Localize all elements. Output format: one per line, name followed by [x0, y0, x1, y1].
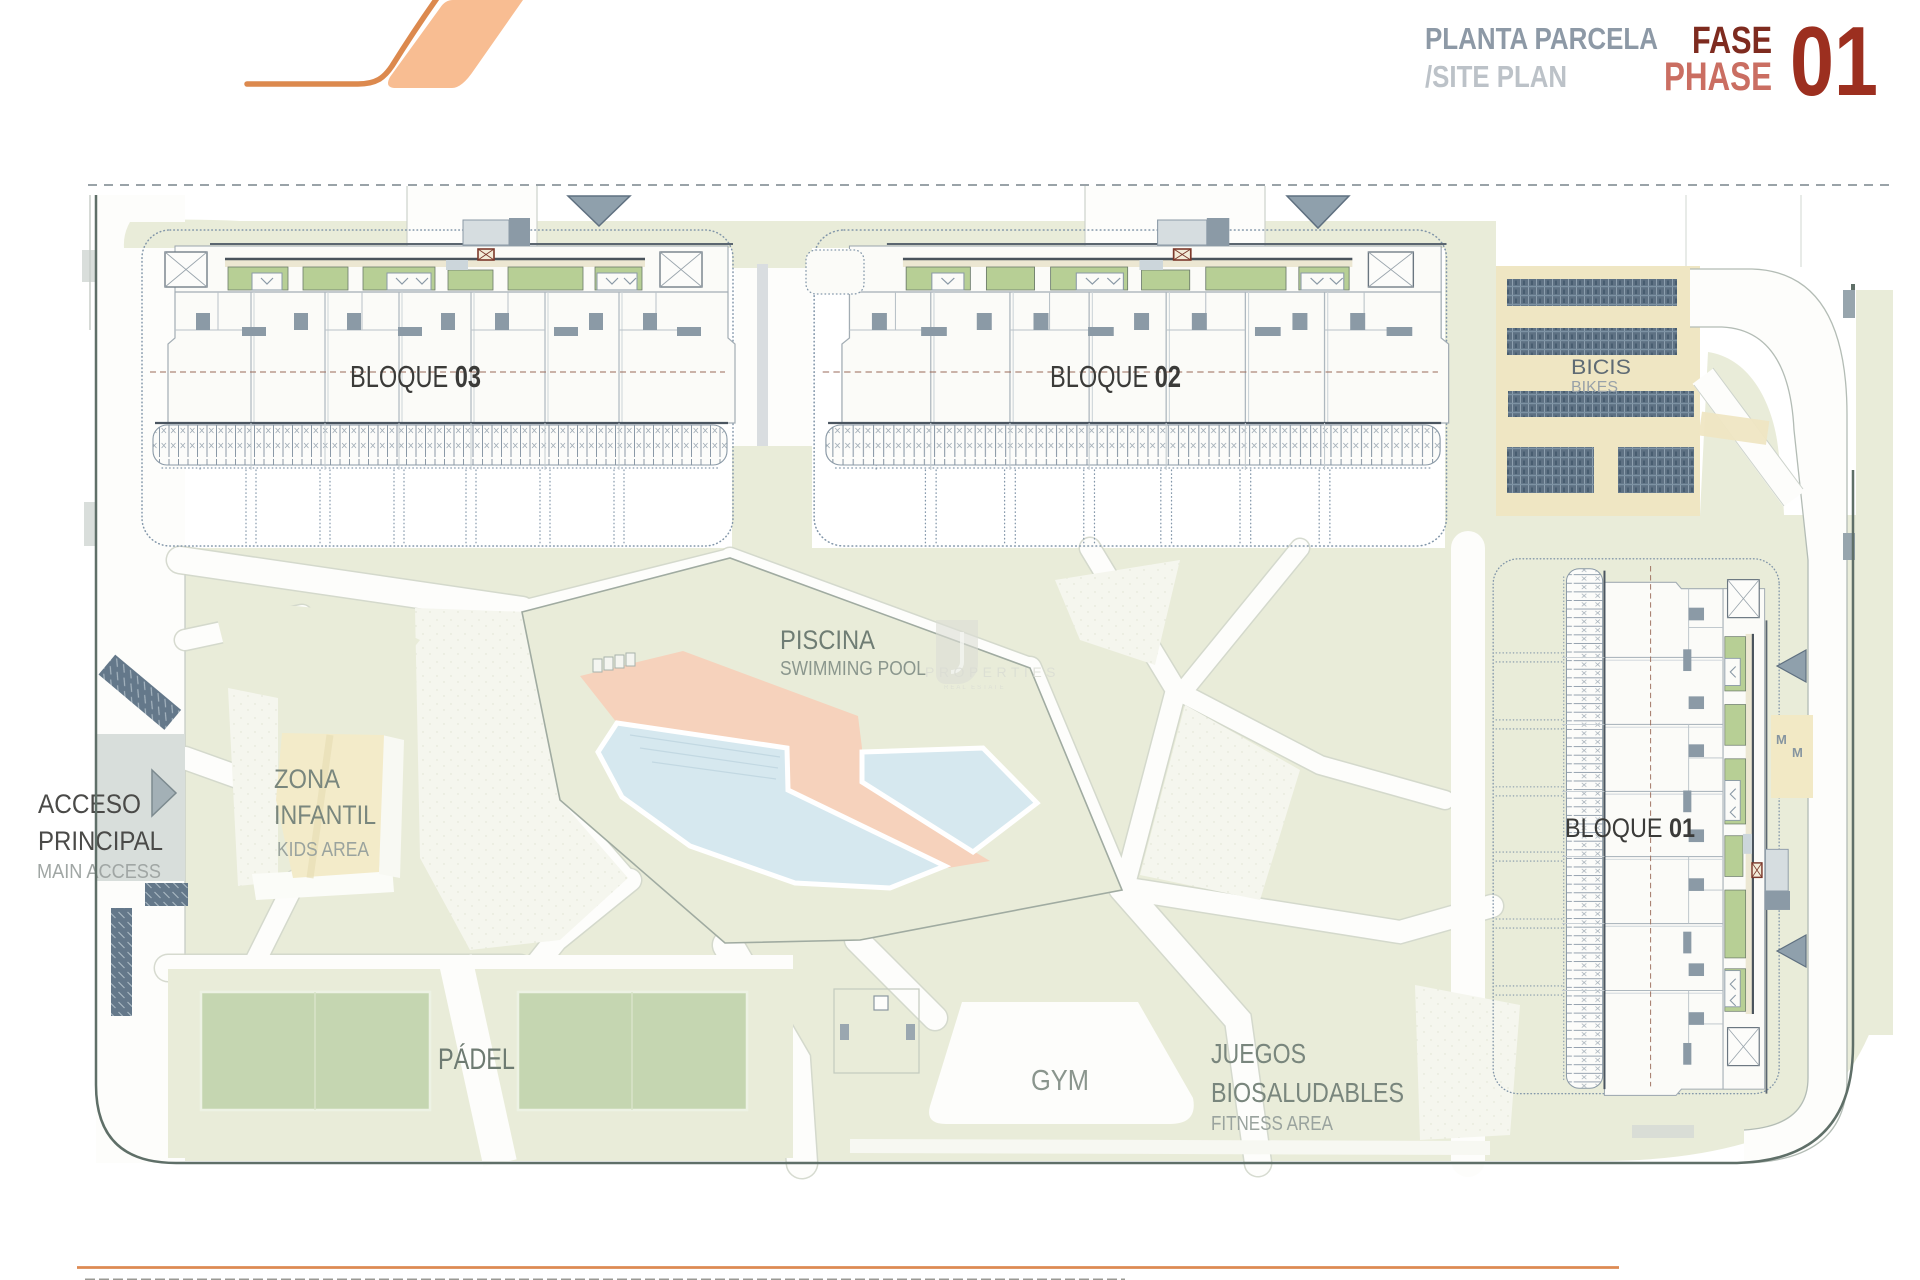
svg-text:KIDS AREA: KIDS AREA [277, 839, 370, 861]
svg-text:PISCINA: PISCINA [780, 625, 875, 655]
svg-text:M: M [1776, 732, 1787, 747]
svg-text:MAIN ACCESS: MAIN ACCESS [37, 861, 161, 883]
svg-text:01: 01 [1790, 6, 1878, 116]
svg-text:PRINCIPAL: PRINCIPAL [38, 826, 163, 856]
svg-text:JUEGOS: JUEGOS [1211, 1038, 1306, 1069]
svg-text:GYM: GYM [1031, 1065, 1089, 1097]
svg-text:ZONA: ZONA [274, 764, 340, 794]
svg-text:PROPERTIES: PROPERTIES [925, 664, 1060, 680]
svg-text:/SITE PLAN: /SITE PLAN [1425, 59, 1567, 94]
svg-text:M: M [1792, 745, 1803, 760]
svg-text:PÁDEL: PÁDEL [438, 1043, 515, 1076]
svg-text:BLOQUE 03: BLOQUE 03 [350, 359, 481, 394]
svg-text:INFANTIL: INFANTIL [274, 800, 376, 830]
svg-text:PHASE: PHASE [1664, 55, 1772, 99]
svg-text:BLOQUE 01: BLOQUE 01 [1565, 813, 1695, 843]
svg-text:PLANTA PARCELA: PLANTA PARCELA [1425, 21, 1658, 56]
svg-text:FITNESS AREA: FITNESS AREA [1211, 1113, 1334, 1135]
svg-text:ACCESO: ACCESO [38, 789, 141, 819]
svg-text:BIKES: BIKES [1571, 379, 1618, 396]
svg-text:SWIMMING POOL: SWIMMING POOL [780, 658, 926, 680]
svg-text:BIOSALUDABLES: BIOSALUDABLES [1211, 1077, 1404, 1108]
svg-text:BICIS: BICIS [1571, 356, 1631, 379]
svg-text:REAL ESTATE: REAL ESTATE [944, 685, 1006, 691]
svg-text:BLOQUE 02: BLOQUE 02 [1050, 359, 1181, 394]
